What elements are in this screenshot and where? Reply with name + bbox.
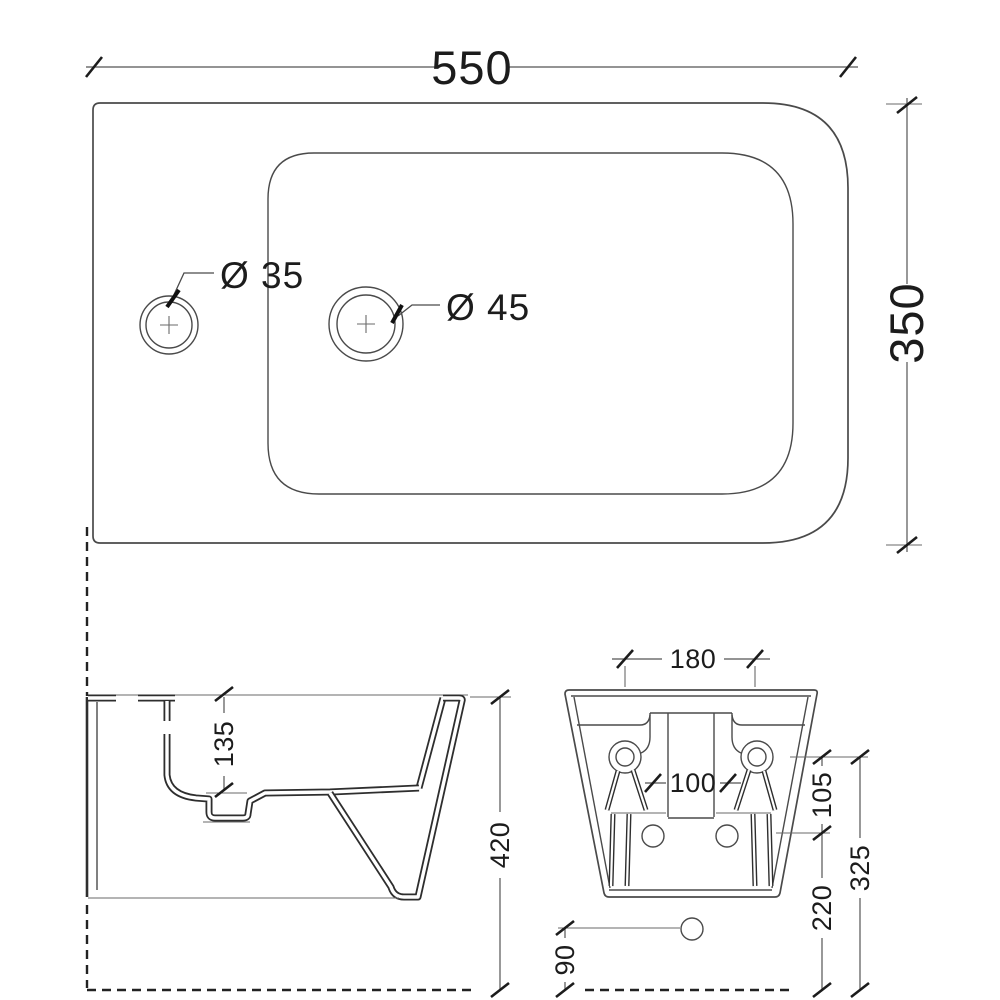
side-basin-trap-band — [167, 701, 419, 818]
dim-105-220: 105 220 — [807, 750, 837, 997]
dim-325: 325 — [845, 750, 875, 997]
fixing-plate-right — [741, 741, 773, 773]
dim-420-label: 420 — [485, 822, 515, 869]
dim-220-label: 220 — [807, 885, 837, 932]
back-legs — [611, 814, 771, 886]
top-view-basin-outline — [268, 153, 793, 494]
drain-hole-cross — [357, 315, 375, 333]
dim-inlet-100: 100 — [645, 768, 741, 798]
dim-350-label: 350 — [880, 282, 933, 363]
back-rim-line — [577, 715, 805, 725]
fixing-hole-right — [748, 748, 766, 766]
dim-height-420: 420 — [470, 690, 515, 997]
dim-depth-350: 350 — [880, 97, 933, 553]
dim-550-label: 550 — [431, 41, 512, 94]
drain-hole-top — [329, 287, 403, 361]
dim-135-label: 135 — [209, 721, 239, 768]
inlet-hole-left — [642, 825, 664, 847]
dim-90: 90 — [550, 921, 580, 997]
drain-hole-back — [681, 918, 703, 940]
faucet-leader-line — [172, 273, 214, 299]
inlet-hole-right — [716, 825, 738, 847]
faucet-hole-cross — [160, 316, 178, 334]
back-view: 180 100 105 220 325 — [550, 644, 875, 997]
dim-fixing-180: 180 — [612, 644, 770, 687]
dim-105-label: 105 — [807, 772, 837, 819]
faucet-leader-tick — [167, 290, 179, 307]
dim-325-label: 325 — [845, 845, 875, 892]
fixing-hole-left — [616, 748, 634, 766]
dim-width-550: 550 — [86, 41, 858, 94]
dim-faucet-hole: Ø 35 — [167, 255, 304, 307]
dim-180-label: 180 — [670, 644, 717, 674]
dim-basin-135: 135 — [209, 687, 239, 797]
dim-100-label: 100 — [670, 768, 717, 798]
technical-drawing-page: Ø 35 Ø 45 550 350 — [0, 0, 1000, 1000]
dim-drain-hole: Ø 45 — [392, 287, 530, 328]
drain-leader-line — [398, 305, 440, 316]
side-view: 135 420 — [87, 687, 515, 997]
top-view: Ø 35 Ø 45 550 350 — [86, 41, 933, 553]
dim-90-label: 90 — [550, 944, 580, 975]
drain-hole-label: Ø 45 — [446, 287, 530, 328]
back-center-column — [641, 713, 741, 818]
side-front-leg-band — [330, 698, 462, 897]
bidet-dimension-drawing: Ø 35 Ø 45 550 350 — [0, 0, 1000, 1000]
fixing-plate-left — [609, 741, 641, 773]
faucet-hole-label: Ø 35 — [220, 255, 304, 296]
